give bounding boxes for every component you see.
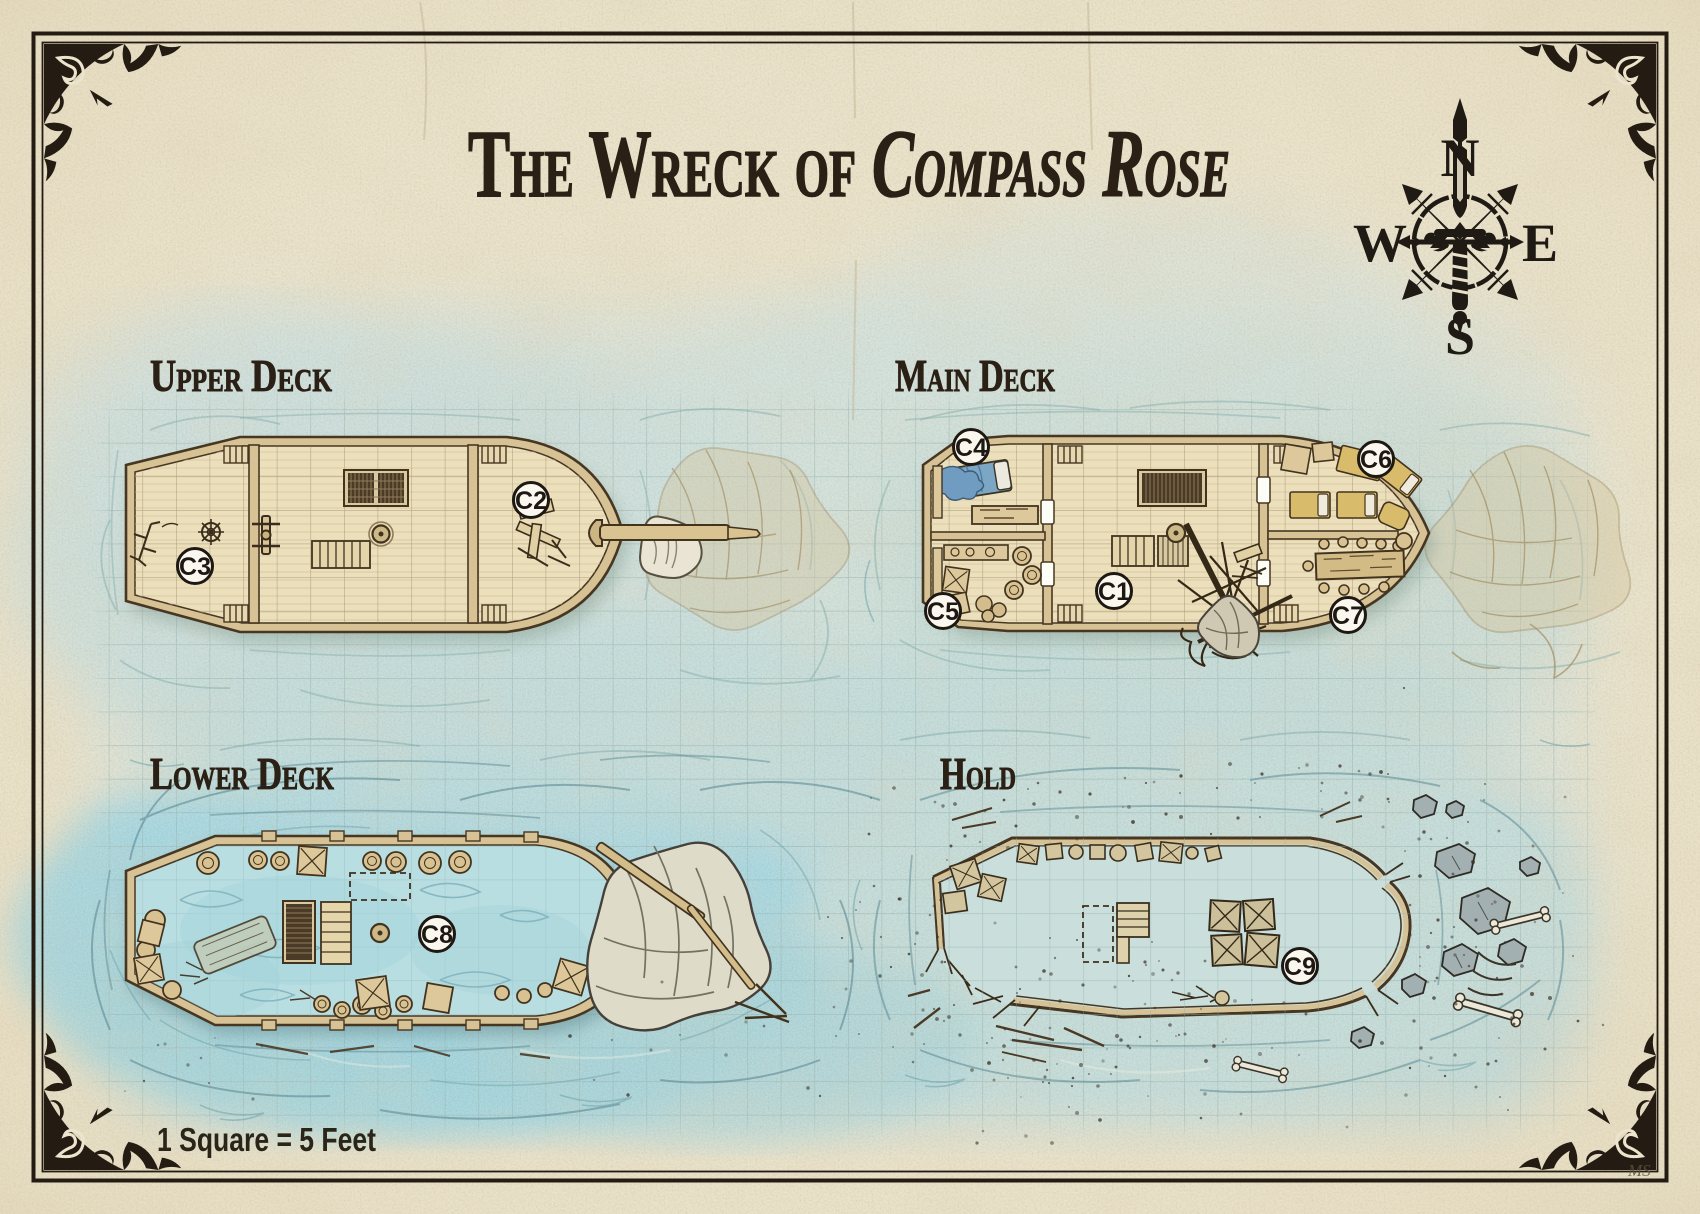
svg-text:C3: C3 (179, 553, 211, 581)
svg-text:Upper Deck: Upper Deck (150, 350, 332, 401)
svg-text:C8: C8 (421, 921, 453, 949)
svg-text:C9: C9 (1284, 953, 1316, 981)
svg-text:MS: MS (1627, 1161, 1651, 1180)
svg-text:E: E (1522, 213, 1558, 273)
svg-text:C5: C5 (927, 598, 959, 626)
svg-text:Lower Deck: Lower Deck (150, 748, 334, 799)
svg-text:Main Deck: Main Deck (895, 350, 1055, 401)
svg-text:Hold: Hold (940, 748, 1016, 799)
svg-text:Compass Rose: Compass Rose (872, 110, 1230, 217)
svg-text:C6: C6 (1360, 446, 1392, 474)
svg-text:The Wreck of: The Wreck of (468, 110, 856, 217)
svg-text:N: N (1441, 128, 1480, 188)
svg-text:C7: C7 (1332, 602, 1364, 630)
svg-text:W: W (1353, 213, 1407, 273)
svg-text:C2: C2 (515, 487, 547, 515)
svg-text:C1: C1 (1098, 578, 1130, 606)
svg-text:S: S (1445, 306, 1475, 366)
svg-text:1 Square = 5 Feet: 1 Square = 5 Feet (157, 1121, 376, 1158)
svg-text:C4: C4 (955, 434, 987, 462)
